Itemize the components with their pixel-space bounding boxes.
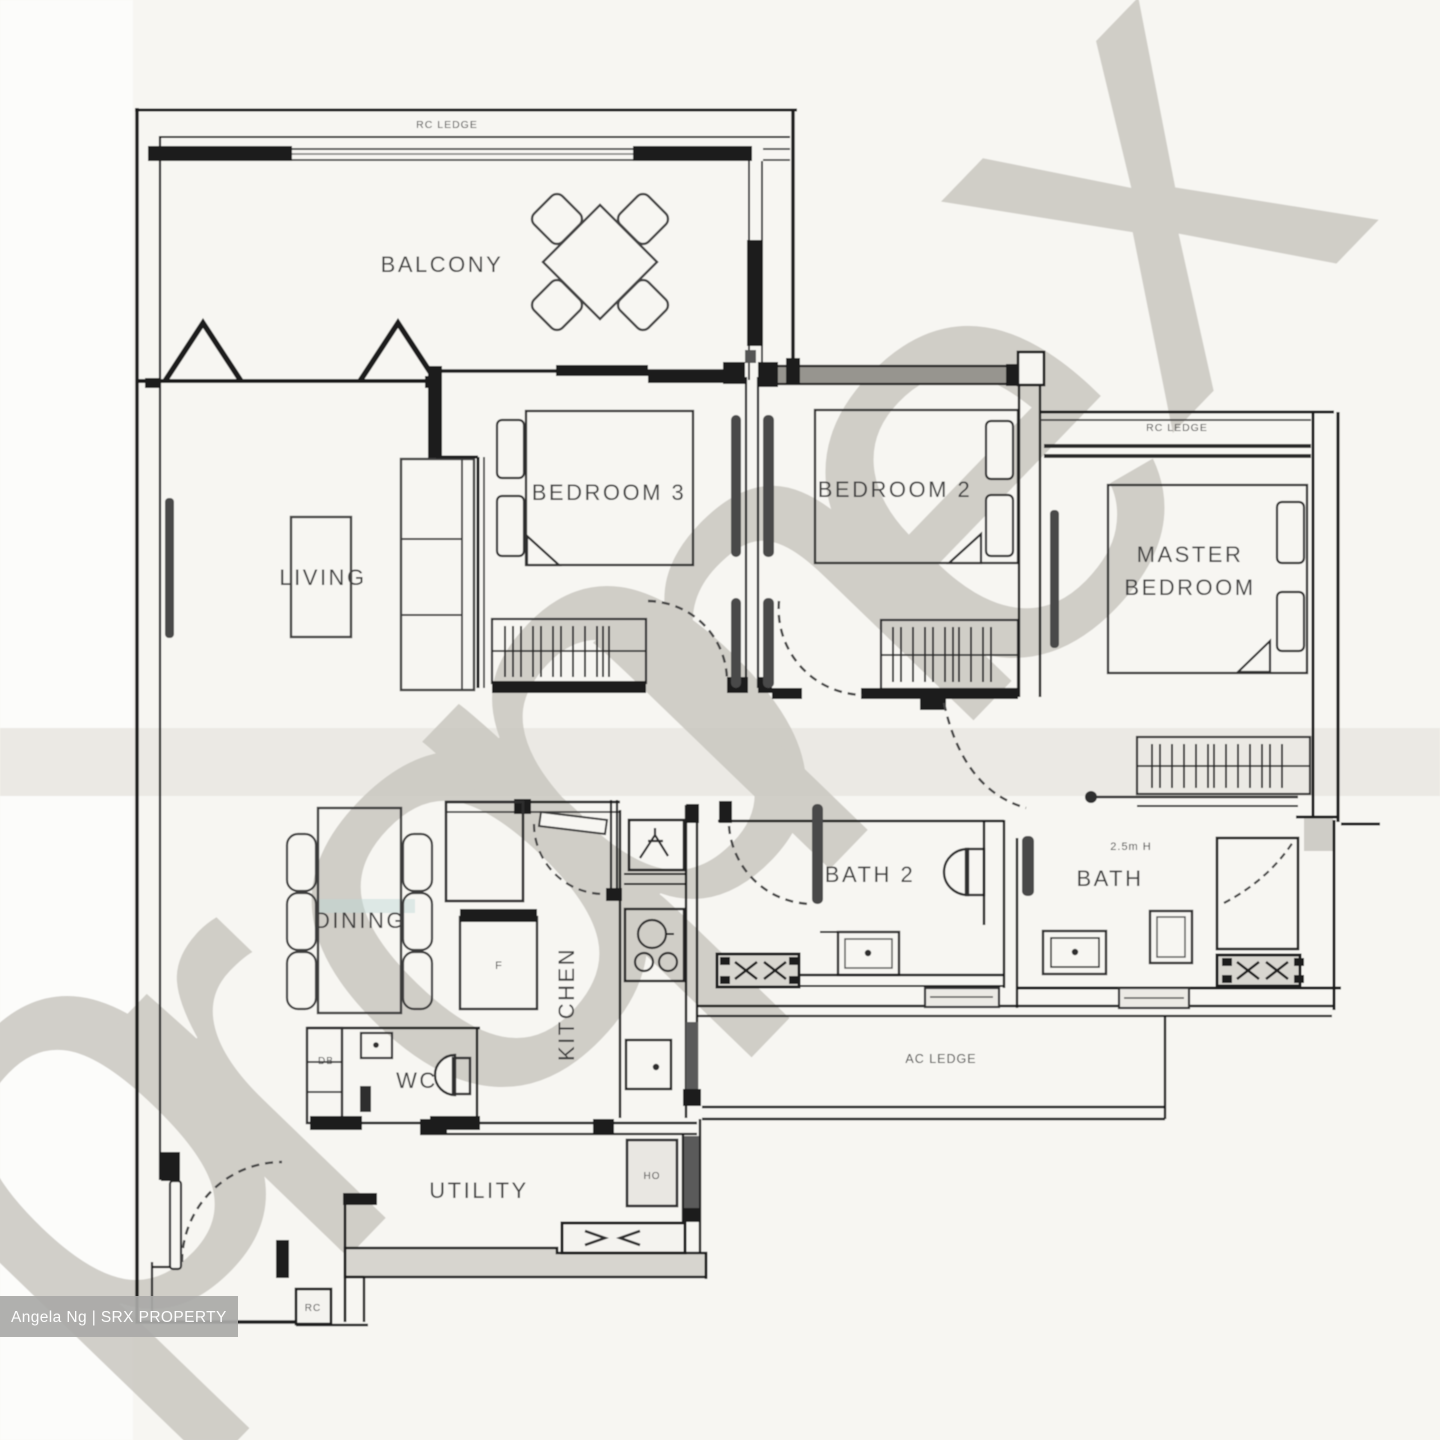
svg-text:RC LEDGE: RC LEDGE — [416, 119, 478, 131]
svg-text:KITCHEN: KITCHEN — [554, 947, 579, 1061]
svg-text:UTILITY: UTILITY — [429, 1178, 528, 1203]
svg-text:BATH 2: BATH 2 — [825, 862, 915, 887]
svg-text:MASTER: MASTER — [1137, 542, 1244, 567]
svg-text:AC LEDGE: AC LEDGE — [905, 1052, 976, 1066]
svg-text:WC: WC — [396, 1068, 438, 1093]
svg-text:DINING: DINING — [314, 908, 406, 933]
svg-text:BATH: BATH — [1076, 866, 1143, 891]
svg-text:HO: HO — [644, 1171, 661, 1182]
svg-text:Angela Ng | SRX PROPERTY: Angela Ng | SRX PROPERTY — [11, 1309, 227, 1326]
svg-text:BEDROOM: BEDROOM — [1124, 575, 1255, 600]
svg-text:2.5m H: 2.5m H — [1110, 841, 1151, 853]
svg-text:RC LEDGE: RC LEDGE — [1146, 422, 1208, 434]
svg-text:BALCONY: BALCONY — [381, 252, 504, 277]
svg-text:BEDROOM 2: BEDROOM 2 — [818, 477, 973, 502]
svg-text:DB: DB — [318, 1056, 334, 1067]
svg-text:BEDROOM 3: BEDROOM 3 — [532, 480, 687, 505]
svg-text:F: F — [495, 960, 503, 972]
svg-text:RC: RC — [305, 1303, 321, 1314]
svg-text:LIVING: LIVING — [279, 565, 366, 590]
